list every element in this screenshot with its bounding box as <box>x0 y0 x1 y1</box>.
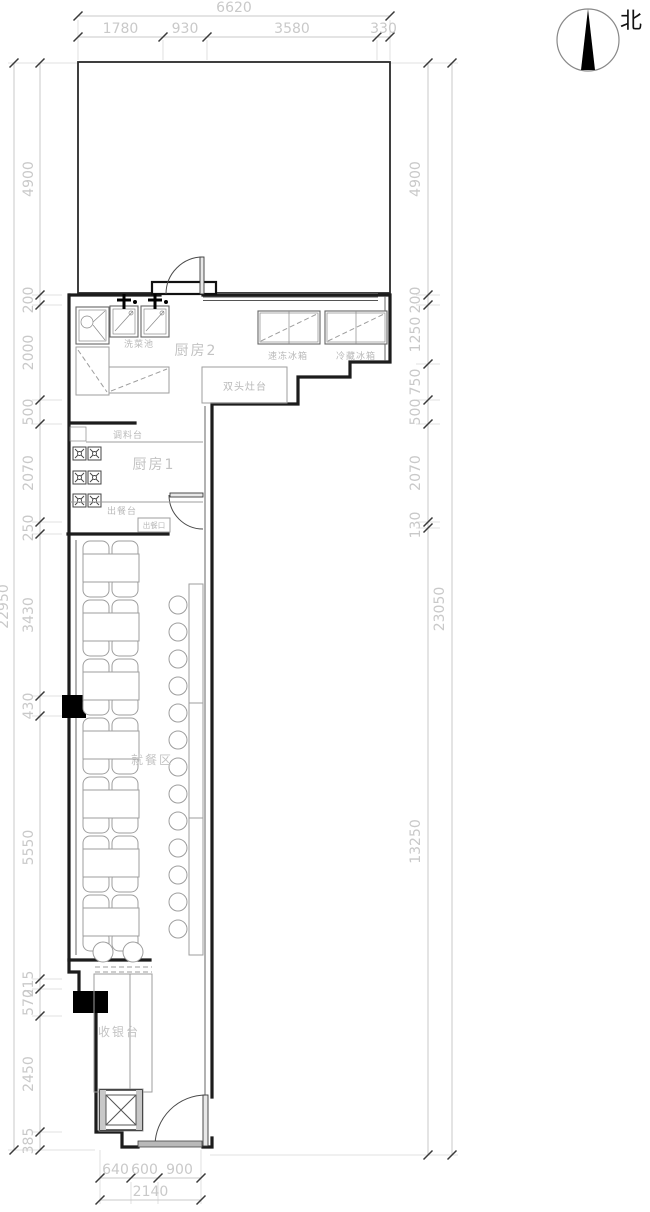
counter-dashed-edge <box>95 967 152 972</box>
courtyard-door-leaf <box>200 257 204 294</box>
table <box>83 849 139 877</box>
dim-label: 3430 <box>21 597 37 633</box>
freezer-unit <box>258 311 320 344</box>
booth-table-group <box>83 777 139 833</box>
shaft-rail <box>100 1090 106 1130</box>
prep-counter-diagonal <box>111 369 167 391</box>
wash-sink-label: 洗菜池 <box>124 338 154 350</box>
burner-center <box>78 476 82 480</box>
table <box>83 790 139 818</box>
shaft-rail <box>136 1090 142 1130</box>
stove-burners <box>73 447 101 507</box>
bar-stool <box>169 623 187 641</box>
dining-booths <box>83 541 139 951</box>
north-compass: 北 <box>557 9 642 71</box>
kitchen-door-leaf <box>170 493 203 497</box>
dim-label: 23050 <box>432 587 448 632</box>
structural-column <box>62 695 86 718</box>
fridge-label: 冷藏冰箱 <box>336 350 376 362</box>
fridge-unit <box>325 311 387 344</box>
floor-plan-sheet: 6620178093035803302295049002002000500207… <box>0 0 650 1212</box>
floor-plan-svg: 6620178093035803302295049002002000500207… <box>0 0 650 1212</box>
bar-stool <box>169 704 187 722</box>
dim-label: 500 <box>408 399 424 426</box>
doors <box>138 257 216 1147</box>
burner-icon <box>88 447 101 460</box>
dim-label: 385 <box>21 1128 37 1155</box>
stool <box>123 942 143 962</box>
bar-counter-top <box>189 584 203 955</box>
structural-column <box>73 991 108 1013</box>
dim-label: 1250 <box>408 317 424 353</box>
dim-label: 2070 <box>408 455 424 491</box>
faucet-knob <box>164 300 168 304</box>
dim-label: 330 <box>370 21 397 37</box>
entrance-door-leaf <box>203 1095 208 1146</box>
dim-label: 13250 <box>408 819 424 864</box>
dim-label: 6620 <box>216 0 252 16</box>
bar-stool <box>169 920 187 938</box>
kitchen2-label: 厨房2 <box>175 343 218 359</box>
booth-table-group <box>83 836 139 892</box>
serving-hatch-label: 出餐口 <box>143 520 166 530</box>
serving-counter-label: 出餐台 <box>107 505 137 517</box>
corner-shelf <box>70 427 86 441</box>
dim-label: 900 <box>166 1162 193 1178</box>
burner-icon <box>88 471 101 484</box>
north-label: 北 <box>620 9 642 34</box>
table <box>83 554 139 582</box>
dim-label: 430 <box>21 693 37 720</box>
burner-icon <box>73 471 86 484</box>
wash-sink-2 <box>141 294 169 337</box>
table <box>83 613 139 641</box>
north-arrow-icon <box>581 9 595 70</box>
stool <box>93 942 113 962</box>
door-jamb <box>152 282 216 294</box>
faucet-knob <box>133 300 137 304</box>
kitchen1-label: 厨房1 <box>133 457 176 473</box>
dim-label: 750 <box>408 369 424 396</box>
double-stove-label: 双头灶台 <box>223 380 267 393</box>
dim-label: 4900 <box>408 161 424 197</box>
entrance-threshold <box>138 1141 202 1147</box>
dim-label: 570 <box>21 989 37 1016</box>
table <box>83 908 139 936</box>
exterior-walls <box>62 295 390 1147</box>
dim-label: 2140 <box>133 1184 169 1200</box>
dining-label: 就餐区 <box>131 752 173 767</box>
cashier-label: 收银台 <box>98 1024 140 1039</box>
dim-label: 250 <box>21 515 37 542</box>
dim-label: 930 <box>172 21 199 37</box>
bar-stool <box>169 839 187 857</box>
booth-table-group <box>83 659 139 715</box>
burner-center <box>93 476 97 480</box>
freezer-label: 速冻冰箱 <box>268 350 308 362</box>
dim-label: 3580 <box>274 21 310 37</box>
booth-table-group <box>83 600 139 656</box>
table <box>83 672 139 700</box>
burner-center <box>78 452 82 456</box>
dumbwaiter-shaft <box>99 1089 143 1131</box>
dim-label: 1780 <box>103 21 139 37</box>
dim-label: 4900 <box>21 161 37 197</box>
prep-counter-diagonal <box>78 350 107 392</box>
bar-counter <box>189 584 203 955</box>
dim-label: 2450 <box>21 1056 37 1092</box>
prep-counter-horizontal <box>109 367 169 393</box>
dim-label: 22950 <box>0 584 12 629</box>
bar-stool <box>169 785 187 803</box>
dim-label: 600 <box>131 1162 158 1178</box>
burner-icon <box>88 494 101 507</box>
courtyard-wall <box>78 62 390 293</box>
dim-label: 2000 <box>21 335 37 371</box>
bar-stool <box>169 866 187 884</box>
kitchen-door-swing <box>169 495 203 529</box>
dim-label: 200 <box>21 287 37 314</box>
wash-sink-1 <box>110 294 138 337</box>
burner-center <box>93 452 97 456</box>
dim-label: 2070 <box>21 455 37 491</box>
bar-stool <box>169 596 187 614</box>
bar-stool <box>169 812 187 830</box>
burner-icon <box>73 494 86 507</box>
bar-stool <box>169 893 187 911</box>
booth-table-group <box>83 541 139 597</box>
bar-stools <box>169 596 187 938</box>
burner-icon <box>73 447 86 460</box>
entrance-door-swing <box>155 1095 206 1146</box>
dim-label: 640 <box>102 1162 129 1178</box>
labels: 厨房2 厨房1 就餐区 收银台 洗菜池 速冻冰箱 冷藏冰箱 双头灶台 调料台 出… <box>98 338 376 1039</box>
dim-label: 130 <box>408 512 424 539</box>
dim-label: 500 <box>21 399 37 426</box>
bar-stool <box>169 731 187 749</box>
bar-stool <box>169 677 187 695</box>
dim-label: 200 <box>408 287 424 314</box>
courtyard-outline <box>78 62 390 293</box>
dim-label: 5550 <box>21 830 37 866</box>
bar-stool <box>169 650 187 668</box>
seasoning-counter-label: 调料台 <box>113 429 143 441</box>
